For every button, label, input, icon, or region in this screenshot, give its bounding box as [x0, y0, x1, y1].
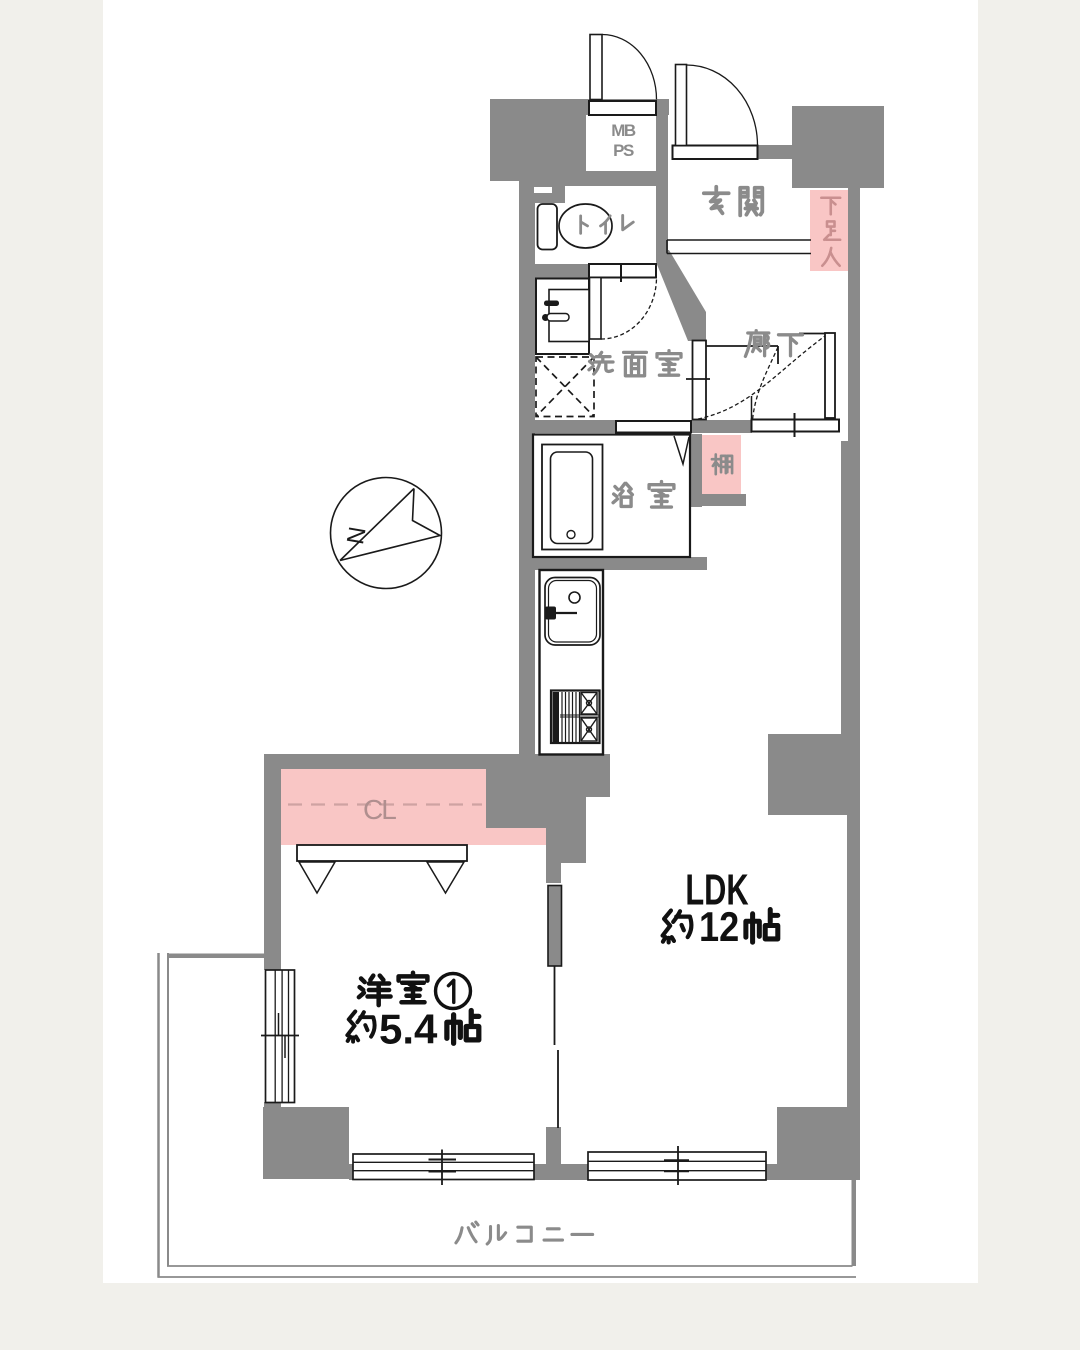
svg-text:5.4: 5.4 — [379, 1006, 438, 1053]
svg-text:MB: MB — [611, 121, 636, 140]
svg-text:PS: PS — [613, 141, 634, 160]
svg-text:12: 12 — [699, 905, 739, 951]
svg-text:CL: CL — [363, 794, 396, 825]
